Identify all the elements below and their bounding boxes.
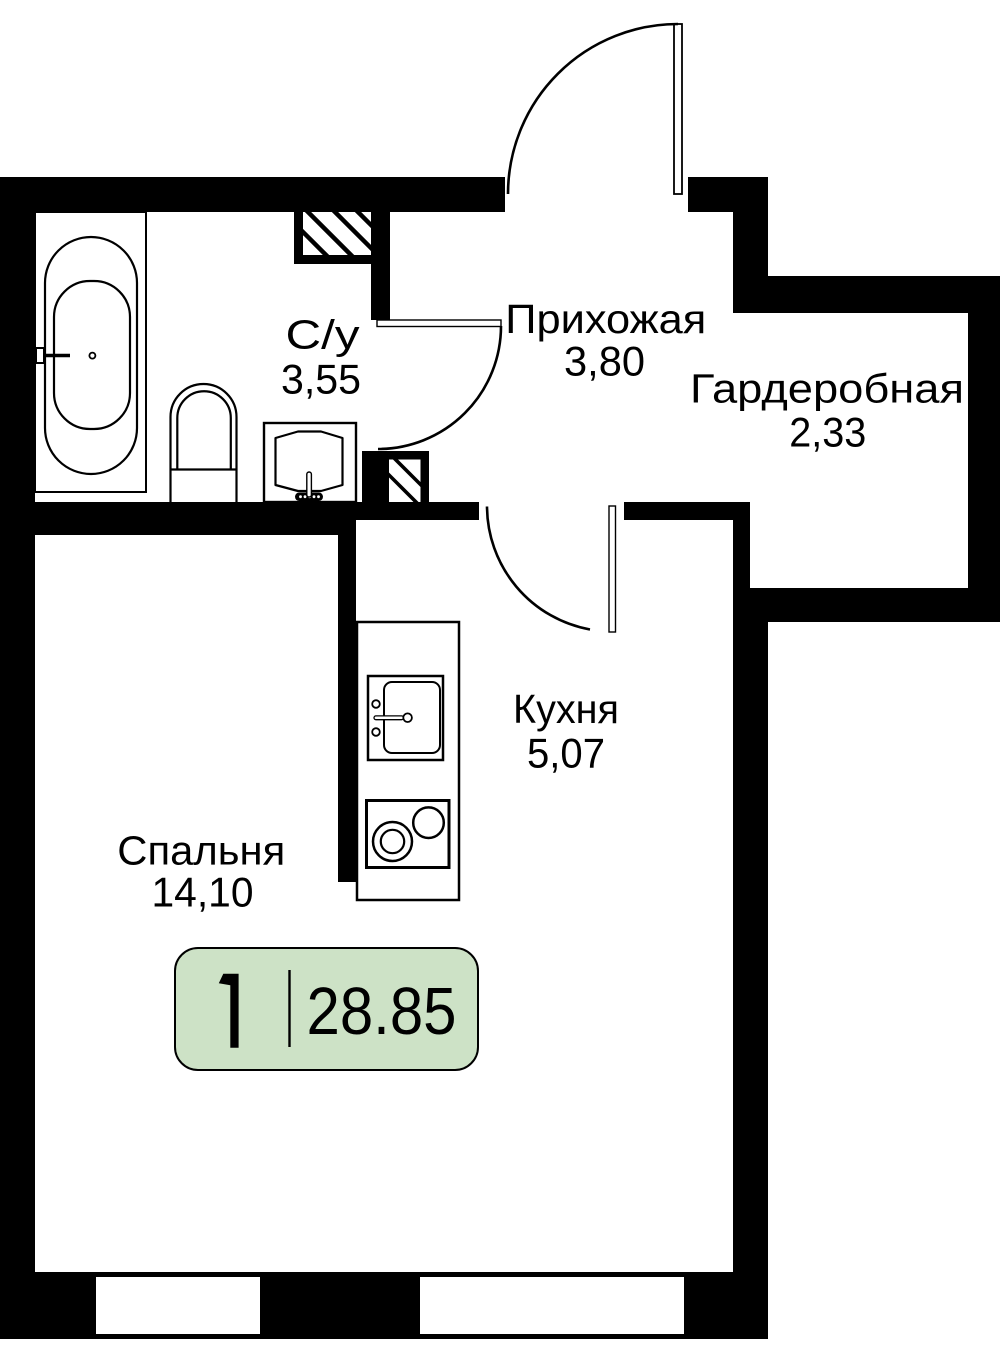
svg-text:2,33: 2,33	[789, 409, 866, 456]
svg-text:Гардеробная: Гардеробная	[690, 366, 964, 412]
svg-text:3,80: 3,80	[564, 338, 645, 385]
svg-text:14,10: 14,10	[152, 869, 254, 916]
svg-text:5,07: 5,07	[527, 730, 605, 777]
svg-text:Спальня: Спальня	[117, 828, 285, 874]
svg-text:28.85: 28.85	[307, 974, 457, 1049]
svg-text:С/у: С/у	[286, 312, 361, 358]
svg-text:Кухня: Кухня	[513, 686, 619, 732]
svg-text:Прихожая: Прихожая	[505, 296, 706, 342]
svg-text:3,55: 3,55	[281, 356, 361, 403]
